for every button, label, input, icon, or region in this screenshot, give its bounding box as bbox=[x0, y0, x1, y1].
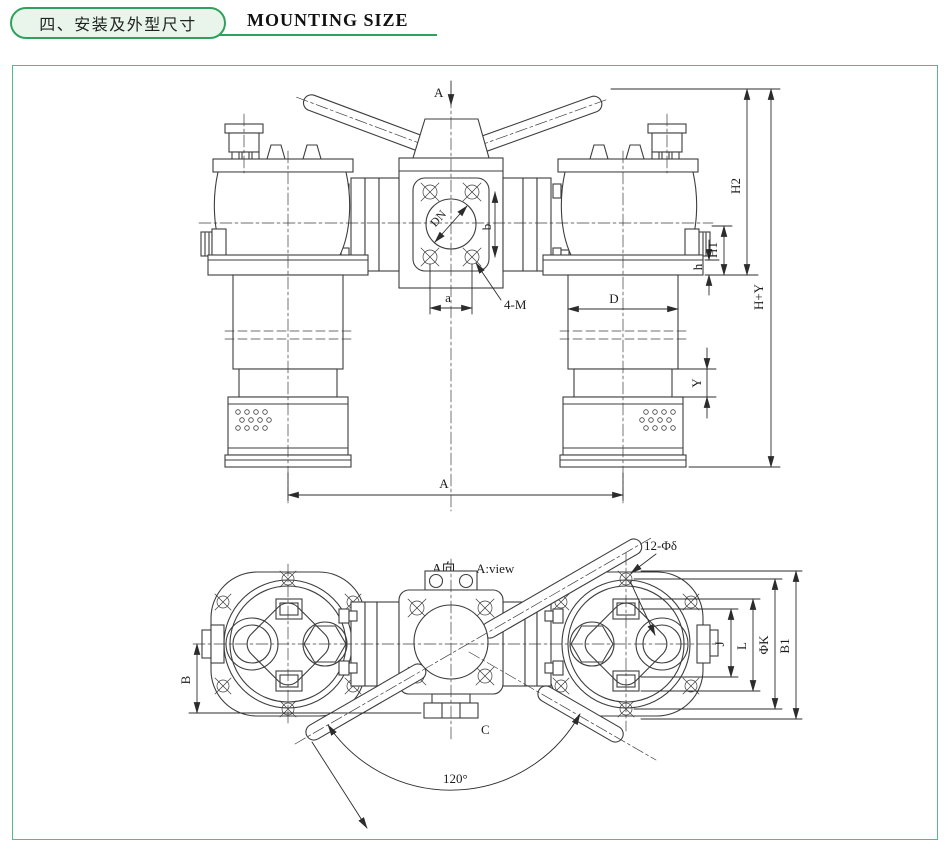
filter-left-front bbox=[201, 124, 368, 467]
dim-label-d: D bbox=[609, 291, 618, 306]
view-direction-label: A bbox=[434, 85, 444, 100]
front-view: A DN b a 4-M D A Y h H1 H2 H+Y bbox=[199, 81, 780, 511]
section-title-en: MOUNTING SIZE bbox=[247, 10, 409, 31]
dim-label-hy: H+Y bbox=[751, 283, 766, 310]
dim-label-bolt-holes: 12-Φδ bbox=[644, 538, 677, 553]
dim-label-h1: H1 bbox=[705, 242, 720, 258]
dim-label-l: L bbox=[734, 642, 749, 650]
dim-label-b1: B1 bbox=[777, 638, 792, 653]
drawing-frame: A DN b a 4-M D A Y h H1 H2 H+Y bbox=[12, 65, 938, 840]
dim-label-4m: 4-M bbox=[504, 297, 527, 312]
dim-label-bolt-circle: ΦK bbox=[756, 635, 771, 655]
plan-view: A向 A:view bbox=[178, 536, 802, 828]
dim-label-j: J bbox=[712, 641, 727, 646]
dim-label-center-distance: A bbox=[439, 476, 449, 491]
dim-label-b-offset: B bbox=[178, 675, 193, 684]
dim-label-swing-angle: 120° bbox=[443, 771, 468, 786]
dim-label-b: b bbox=[479, 224, 494, 231]
dim-label-y: Y bbox=[689, 378, 704, 388]
dim-label-h: h bbox=[690, 263, 705, 270]
dimensions-front: A DN b a 4-M D A Y h H1 H2 H+Y bbox=[288, 81, 780, 501]
dim-label-a: a bbox=[445, 290, 451, 305]
dim-label-c: C bbox=[481, 722, 490, 737]
section-title-cn: 四、安装及外型尺寸 bbox=[39, 11, 197, 35]
plan-title-en: A:view bbox=[476, 561, 515, 576]
dim-label-h2: H2 bbox=[728, 178, 743, 194]
filter-right-front bbox=[543, 124, 710, 467]
section-title-pill: 四、安装及外型尺寸 bbox=[10, 7, 226, 39]
technical-drawing: A DN b a 4-M D A Y h H1 H2 H+Y bbox=[13, 66, 937, 839]
